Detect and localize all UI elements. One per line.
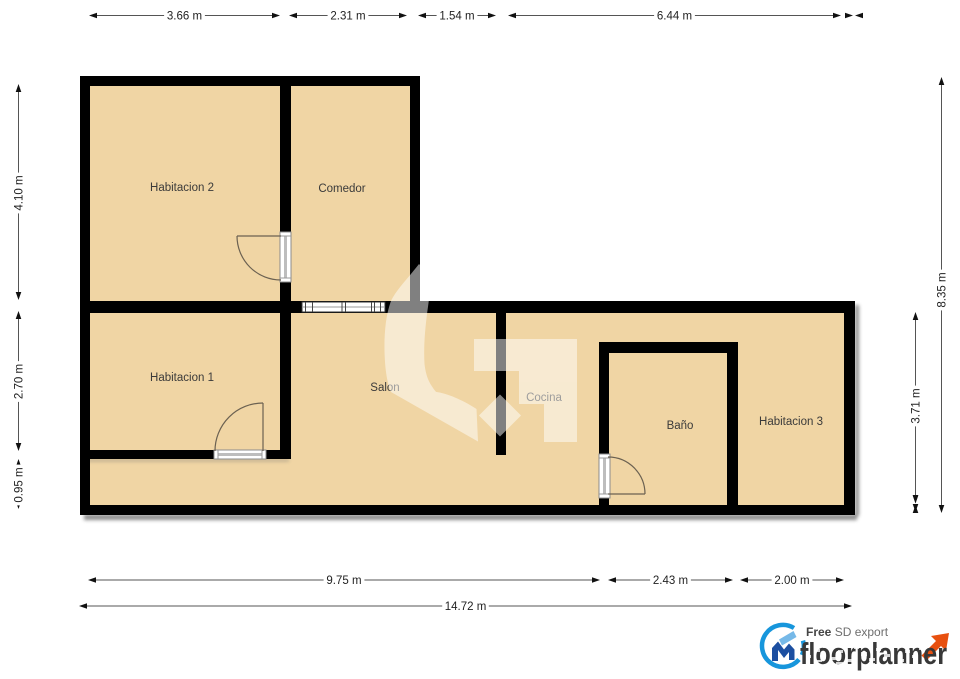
svg-text:2.00 m: 2.00 m [774,575,809,587]
svg-text:0.95 m: 0.95 m [14,467,26,502]
svg-text:8.35 m: 8.35 m [937,272,949,307]
svg-text:1.54 m: 1.54 m [439,11,474,23]
svg-text:14.72 m: 14.72 m [445,601,487,613]
svg-text:3.71 m: 3.71 m [911,388,923,423]
svg-text:Habitacion 3: Habitacion 3 [759,416,823,428]
svg-text:floorplanner: floorplanner [800,636,947,671]
svg-text:Baño: Baño [667,420,694,432]
svg-text:9.75 m: 9.75 m [326,575,361,587]
svg-text:4.10 m: 4.10 m [14,175,26,210]
svg-text:2.43 m: 2.43 m [653,575,688,587]
svg-text:2.70 m: 2.70 m [14,364,26,399]
svg-text:6.44 m: 6.44 m [657,11,692,23]
svg-text:Habitacion 1: Habitacion 1 [150,372,214,384]
svg-text:2.31 m: 2.31 m [330,11,365,23]
svg-text:Comedor: Comedor [318,183,365,195]
svg-text:3.66 m: 3.66 m [167,11,202,23]
svg-text:Habitacion 2: Habitacion 2 [150,182,214,194]
svg-text:Free SD export: Free SD export [806,625,889,639]
